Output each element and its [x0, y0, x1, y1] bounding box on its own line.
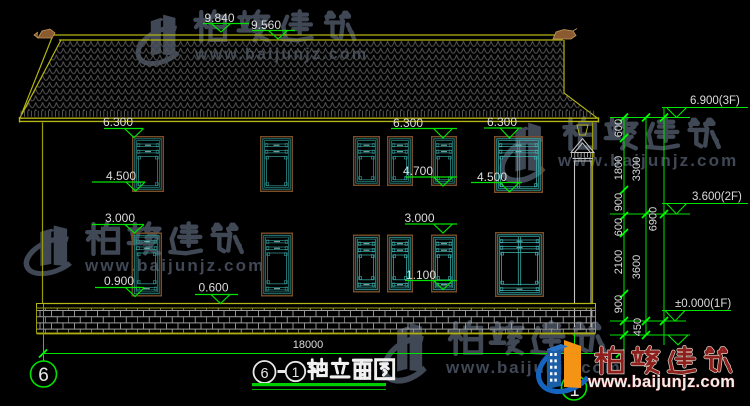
- svg-text:www.baijunjz.com: www.baijunjz.com: [587, 373, 735, 391]
- svg-text:3.000: 3.000: [404, 211, 434, 225]
- svg-text:2100: 2100: [613, 250, 625, 274]
- svg-text:6: 6: [260, 366, 268, 382]
- svg-text:600: 600: [613, 119, 625, 137]
- svg-text:6.300: 6.300: [103, 115, 133, 129]
- svg-text:3.000: 3.000: [105, 211, 135, 225]
- svg-text:4.500: 4.500: [106, 169, 136, 183]
- svg-text:18000: 18000: [293, 339, 324, 351]
- svg-text:0.900: 0.900: [104, 274, 134, 288]
- svg-text:900: 900: [613, 295, 625, 313]
- svg-text:3600: 3600: [631, 255, 643, 279]
- svg-text:www.baijunjz.com: www.baijunjz.com: [84, 256, 265, 275]
- svg-text:3.600(2F): 3.600(2F): [692, 191, 742, 203]
- svg-text:0.600: 0.600: [198, 281, 228, 295]
- svg-text:1800: 1800: [613, 156, 625, 180]
- svg-text:6.900(3F): 6.900(3F): [690, 95, 740, 107]
- svg-text:4.700: 4.700: [403, 164, 433, 178]
- svg-text:600: 600: [613, 218, 625, 236]
- svg-text:3300: 3300: [631, 157, 643, 181]
- svg-text:900: 900: [613, 193, 625, 211]
- svg-text:6900: 6900: [648, 207, 660, 231]
- svg-text:1: 1: [292, 365, 300, 380]
- svg-text:450: 450: [632, 318, 644, 336]
- svg-text:6: 6: [38, 365, 49, 386]
- svg-text:6.300: 6.300: [487, 115, 517, 129]
- svg-text:±0.000(1F): ±0.000(1F): [675, 298, 731, 310]
